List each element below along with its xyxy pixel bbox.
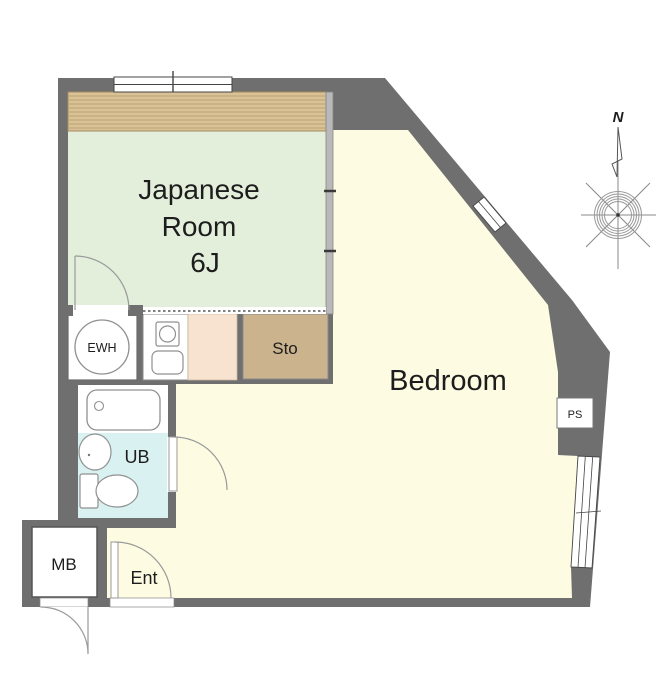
compass-needle	[612, 127, 622, 177]
floorplan-canvas: N Japanese Room 6J Bedroom Sto UB EWH MB…	[0, 0, 660, 700]
bedroom-label: Bedroom	[389, 365, 507, 397]
japanese-room-label-line2: Room	[162, 211, 237, 242]
top-wall-window	[114, 71, 232, 92]
meter-box-label: MB	[51, 555, 77, 574]
japanese-room-label-line1: Japanese	[138, 174, 259, 205]
unit-bath-label: UB	[124, 447, 149, 467]
washbasin	[79, 434, 111, 470]
water-heater-label: EWH	[87, 341, 116, 355]
japanese-door-opening	[58, 305, 143, 316]
pipe-space-label: PS	[568, 409, 583, 421]
japanese-kitchen-boundary	[143, 307, 326, 314]
entrance-door-opening	[110, 598, 174, 607]
tatami-band	[68, 92, 326, 131]
north-label: N	[613, 109, 625, 126]
kitchen-counter	[188, 314, 237, 380]
compass: N	[581, 109, 656, 269]
toilet	[80, 474, 138, 508]
compass-center-dot	[616, 213, 620, 217]
floorplan-svg: N Japanese Room 6J Bedroom Sto UB EWH MB…	[0, 0, 660, 700]
meter-box-door	[41, 607, 88, 654]
entrance-label: Ent	[130, 568, 157, 588]
bathtub	[87, 390, 160, 430]
meter-box-door-opening	[40, 598, 88, 607]
japanese-room-label-line3: 6J	[190, 247, 220, 278]
storage-label: Sto	[272, 339, 298, 358]
